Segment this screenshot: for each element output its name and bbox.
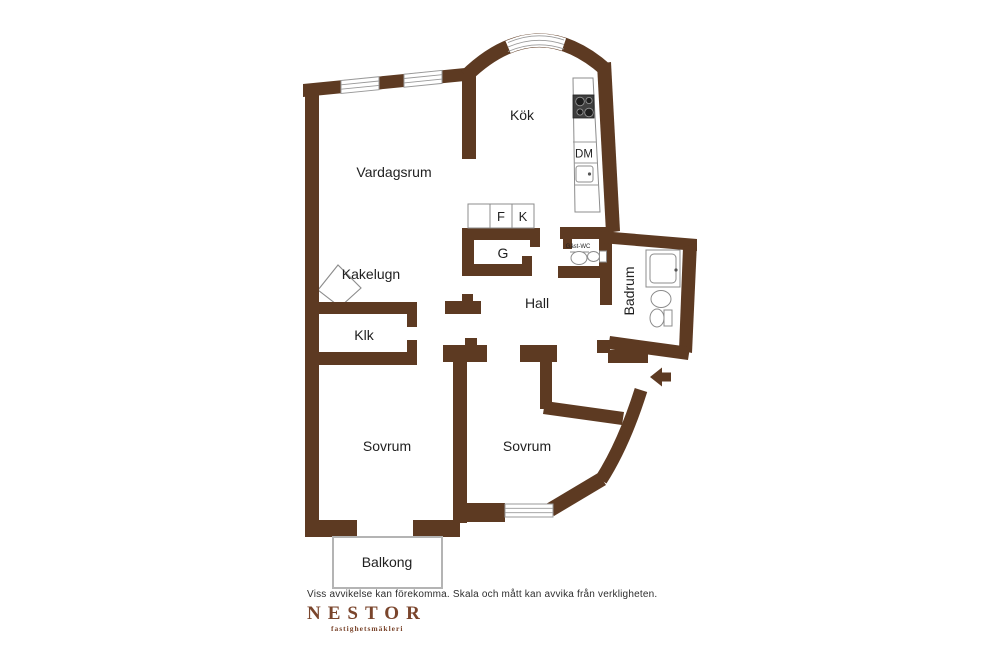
room-label-sovrum-1: Sovrum [363, 438, 411, 454]
wall-segment [522, 256, 532, 264]
wall-segment [462, 228, 540, 240]
bathroom-fixtures [646, 250, 680, 327]
wall-segment [546, 473, 606, 516]
shower-tray [650, 254, 676, 283]
wall-segment [453, 362, 467, 523]
floorplan-page: DM F K [0, 0, 1000, 667]
disclaimer-text: Viss avvikelse kan förekomma. Skala och … [307, 589, 727, 600]
wall-segment [305, 84, 319, 537]
bath-sink [651, 291, 671, 308]
wall-segment [462, 294, 473, 301]
room-label-badrum: Badrum [621, 266, 637, 315]
footer: Viss avvikelse kan förekomma. Skala och … [307, 589, 727, 633]
wc-sink [571, 252, 587, 265]
wc-toilet-bowl [588, 252, 600, 262]
fridge-label: F [497, 209, 505, 224]
floorplan-svg: DM F K [0, 0, 1000, 667]
entrance-arrow-icon [650, 368, 671, 387]
room-label-sovrum-2: Sovrum [503, 438, 551, 454]
wall-segment [317, 302, 417, 314]
cabinet [468, 204, 490, 228]
stove-burner [577, 109, 583, 115]
bath-toilet-bowl [650, 309, 664, 327]
room-label-hall: Hall [525, 295, 549, 311]
freezer-label: K [519, 209, 528, 224]
wall-segment [465, 338, 477, 345]
window [341, 77, 379, 94]
dishwasher-label: DM [575, 149, 593, 161]
sink-drain [588, 172, 591, 175]
wall-segment [445, 301, 481, 314]
room-label-gast-wc: Gäst-WC [566, 244, 591, 250]
brand-logo: NESTOR [307, 603, 727, 625]
wall-segment [317, 352, 417, 365]
wall-segment [407, 340, 417, 352]
bath-toilet-tank [664, 310, 672, 326]
wall-segment [601, 231, 697, 251]
shower-drain [674, 268, 677, 271]
guest-wc-fixtures [570, 251, 607, 265]
wall-segment [413, 520, 460, 537]
stove-burner [585, 108, 594, 117]
wall-segment [597, 62, 620, 233]
window [505, 504, 553, 517]
feature-label-kakelugn: Kakelugn [342, 266, 400, 282]
room-label-balkong: Balkong [362, 554, 413, 570]
wall-segment [462, 73, 476, 159]
kitchen-counter: DM [573, 78, 600, 212]
wall-segment [600, 278, 612, 305]
wall-segment [305, 520, 357, 537]
wall-segment [453, 503, 505, 522]
feature-label-garderob: G [498, 245, 509, 261]
walls [303, 40, 697, 537]
stove-burner [576, 97, 585, 106]
room-label-vardagsrum: Vardagsrum [356, 164, 431, 180]
wall-segment [679, 243, 697, 353]
wall-segment [443, 345, 487, 362]
room-label-kok: Kök [510, 107, 535, 123]
wc-toilet-tank [600, 251, 607, 262]
cabinet-row: F K [468, 204, 534, 228]
wall-segment [407, 314, 417, 327]
room-label-klk: Klk [354, 327, 374, 343]
brand-tagline: fastighetsmäkleri [331, 624, 727, 633]
wall-segment [608, 350, 648, 363]
stove-burner [586, 97, 592, 103]
wall-segment [520, 345, 557, 362]
wall-segment [543, 401, 624, 425]
curved-wall [601, 390, 641, 480]
wall-segment [462, 264, 532, 276]
window [404, 70, 442, 87]
wall-segment [530, 240, 540, 247]
